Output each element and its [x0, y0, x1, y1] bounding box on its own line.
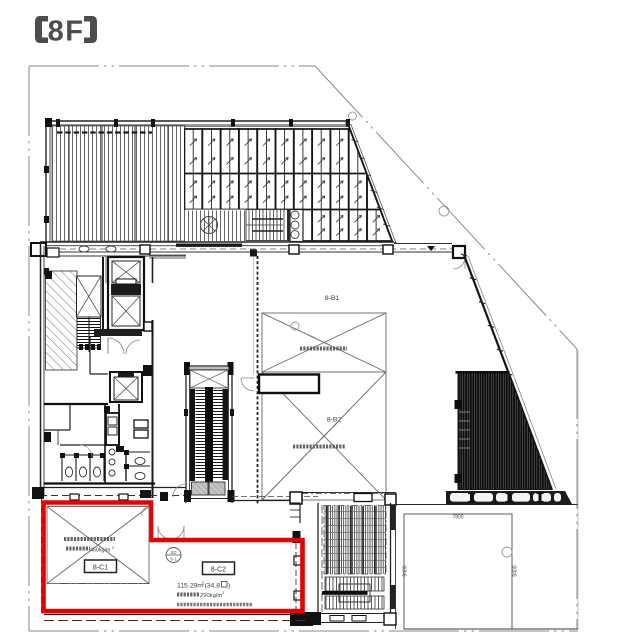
svg-text:115.29m: 115.29m	[177, 583, 203, 590]
svg-text:8-1: 8-1	[170, 556, 177, 561]
svg-text:7800: 7800	[452, 515, 463, 521]
svg-text:8-C2: 8-C2	[211, 567, 226, 574]
svg-text:9400: 9400	[513, 565, 519, 576]
svg-text:290kg/m: 290kg/m	[200, 593, 222, 599]
svg-text:(34.8: (34.8	[205, 583, 221, 590]
svg-text:8-B1: 8-B1	[325, 295, 340, 302]
svg-text:450kg/m: 450kg/m	[90, 548, 111, 554]
svg-text:8-C1: 8-C1	[93, 565, 108, 572]
svg-text:9400: 9400	[403, 565, 409, 576]
svg-text:SD: SD	[171, 550, 177, 555]
svg-text:): )	[228, 583, 230, 590]
svg-text:8F: 8F	[48, 16, 85, 48]
